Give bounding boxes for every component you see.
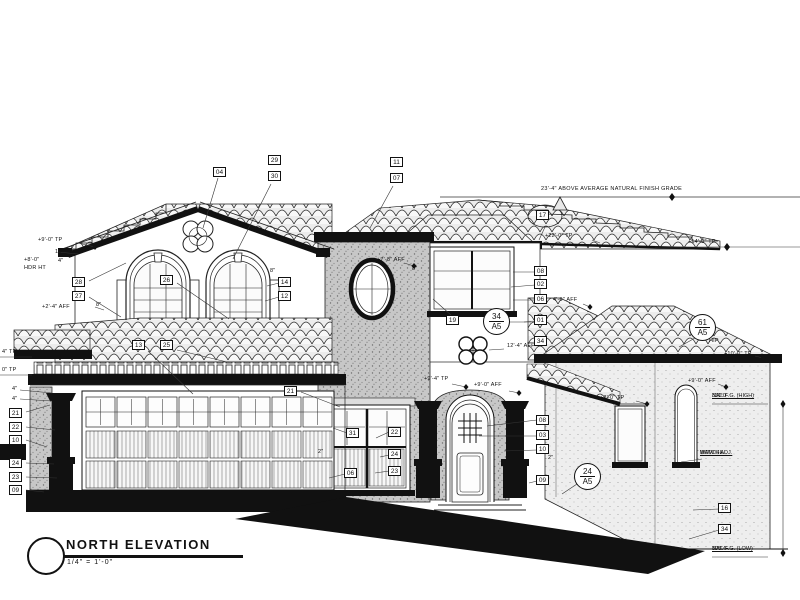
- dimension-label: +22'-0" TP: [545, 233, 573, 239]
- callout-box: 04: [213, 167, 226, 177]
- dimension-label: +8'-0" TP: [600, 395, 624, 401]
- dimension-label: 0" TP: [2, 367, 16, 373]
- callout-box: 31: [346, 428, 359, 438]
- callout-box: 23: [388, 466, 401, 476]
- callout-box: 03: [536, 430, 549, 440]
- dimension-label: 4" TP: [2, 349, 16, 355]
- callout-box: 08: [534, 266, 547, 276]
- callout-box: 10: [9, 435, 22, 445]
- callout-box: 34: [534, 336, 547, 346]
- callout-box: 26: [160, 275, 173, 285]
- callout-box: 19: [446, 315, 459, 325]
- dimension-label: 12'-4" AFF: [507, 343, 535, 349]
- title-underline: [64, 555, 243, 558]
- dimension-label: 2": [318, 449, 323, 455]
- dimension-label: 8": [270, 268, 275, 274]
- title-bubble-icon: [27, 537, 65, 575]
- dimension-label: +7'-8" AFF: [377, 257, 405, 263]
- dimension-label: 10": [55, 249, 64, 255]
- callout-box: 28: [72, 277, 85, 287]
- lower-tile-roof: [14, 318, 346, 385]
- note-line: WDW SILL: [700, 450, 727, 457]
- callout-box: 13: [132, 340, 145, 350]
- garage: [30, 385, 346, 497]
- callout-box: 22: [9, 422, 22, 432]
- callout-circle-sheet: A5: [695, 328, 711, 337]
- note-line: NAT. F.G. (HIGH): [712, 393, 754, 400]
- callout-box: 23: [9, 472, 22, 482]
- callout-box: 21: [284, 386, 297, 396]
- callout-box: 27: [72, 291, 85, 301]
- callout-circle: 61A5: [689, 314, 716, 341]
- dimension-label: +9'-0" AFF: [474, 382, 502, 388]
- dimension-label: 2": [548, 455, 553, 461]
- callout-box: 06: [344, 468, 357, 478]
- callout-circle-detail: 34: [489, 312, 504, 322]
- callout-box: 09: [9, 485, 22, 495]
- dimension-label: +2'-4" AFF: [42, 304, 70, 310]
- dimension-label: +14'-0" TP: [688, 239, 716, 245]
- wing-window: [612, 404, 648, 468]
- callout-circle: 24A5: [574, 463, 601, 490]
- drawing-scale: 1/4" = 1'-0": [67, 559, 113, 566]
- callout-box: 24: [9, 458, 22, 468]
- callout-box: 10: [536, 444, 549, 454]
- callout-circle-detail: 61: [695, 318, 710, 328]
- callout-box: 22: [388, 427, 401, 437]
- callout-box: 06: [534, 294, 547, 304]
- callout-circle-detail: 24: [580, 467, 595, 477]
- max-height-note: 23'-4" ABOVE AVERAGE NATURAL FINISH GRAD…: [541, 186, 682, 192]
- dimension-label: +9'-0" AFF: [688, 378, 716, 384]
- callout-box: 07: [390, 173, 403, 183]
- callout-box: 16: [718, 503, 731, 513]
- dimension-label: 8": [96, 302, 101, 308]
- dimension-label: HDR HT: [24, 265, 46, 271]
- callout-circle: 34A5: [483, 308, 510, 335]
- dimension-label: 4'-0" AFF: [553, 297, 577, 303]
- callout-box: 29: [268, 155, 281, 165]
- elevation-line-drawing: [0, 0, 800, 600]
- note-line: NAT. F.G. (LOW): [712, 546, 753, 553]
- dimension-label: 8": [412, 266, 417, 272]
- callout-box: 11: [390, 157, 403, 167]
- dimension-label: +9'-0" TP: [38, 237, 62, 243]
- right-wing: [534, 306, 782, 549]
- callout-box: 09: [536, 475, 549, 485]
- callout-box: 14: [278, 277, 291, 287]
- callout-box: 08: [536, 415, 549, 425]
- dimension-label: 4": [12, 396, 17, 402]
- callout-box: 21: [9, 408, 22, 418]
- quatrefoil-ornament-small: [459, 337, 487, 364]
- height-line-marker: [669, 193, 675, 201]
- callout-box: 30: [268, 171, 281, 181]
- callout-box: 34: [718, 524, 731, 534]
- callout-box: 17: [536, 210, 549, 220]
- callout-circle-sheet: A5: [489, 322, 505, 331]
- callout-box: 02: [534, 279, 547, 289]
- dimension-label: +10'-0" TP: [724, 351, 752, 357]
- callout-box: 25: [160, 340, 173, 350]
- callout-box: 24: [388, 449, 401, 459]
- elevation-sheet: { "drawing": { "title": "NORTH ELEVATION…: [0, 0, 800, 600]
- dimension-label: +9'-4" TP: [424, 376, 448, 382]
- dimension-label: HIP: [709, 338, 719, 344]
- callout-circle-sheet: A5: [580, 477, 596, 486]
- dimension-label: 4": [58, 258, 63, 264]
- dimension-label: 4": [12, 386, 17, 392]
- oval-window: [351, 260, 393, 318]
- callout-box: 12: [278, 291, 291, 301]
- dimension-label: +8'-0": [24, 257, 39, 263]
- wing-arched-niche: [672, 385, 700, 468]
- drawing-title: NORTH ELEVATION: [66, 537, 211, 552]
- callout-box: 01: [534, 315, 547, 325]
- revision-triangle-icon: [553, 197, 567, 210]
